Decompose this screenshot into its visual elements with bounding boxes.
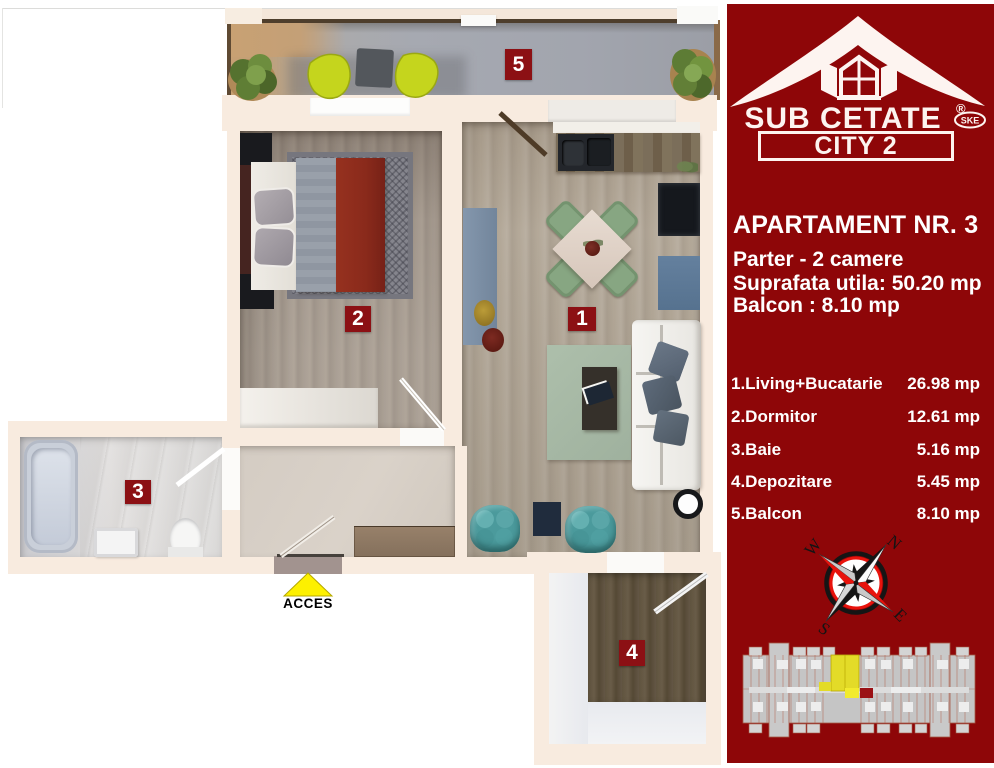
svg-text:N: N [884,531,906,553]
svg-text:SKE: SKE [961,116,980,126]
svg-text:ACCES: ACCES [283,596,333,611]
svg-text:E: E [890,605,911,626]
svg-text:S: S [815,618,834,639]
